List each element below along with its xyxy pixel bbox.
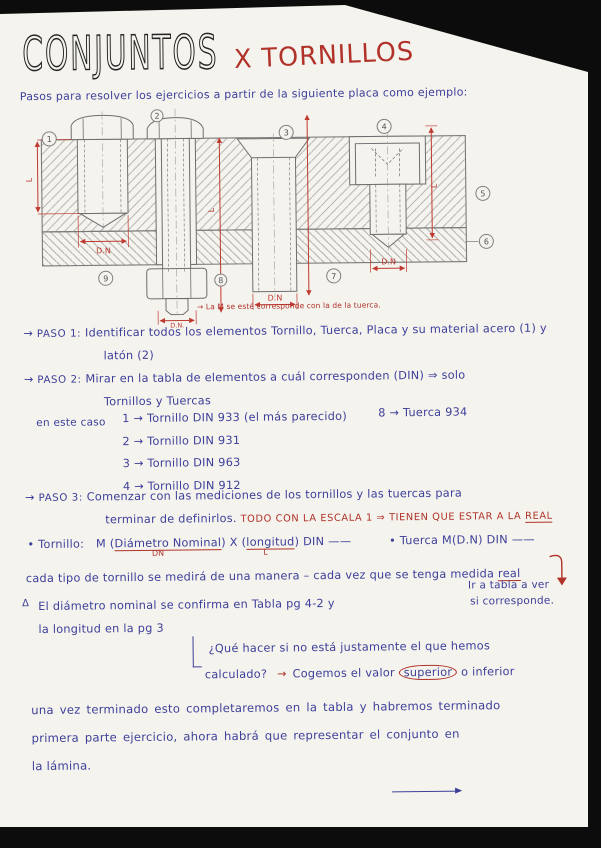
answer-pre: Cogemos el valor xyxy=(293,666,395,680)
paso1-text-2: latón (2) xyxy=(103,349,154,363)
paso3-text-2: terminar de definirlos. xyxy=(105,512,237,526)
paso2-label: PASO 2: xyxy=(37,375,81,386)
measure-note: cada tipo de tornillo se medirá de una m… xyxy=(26,567,494,585)
paso2-text: Mirar en la tabla de elementos a cuál co… xyxy=(85,369,465,386)
dim-label-l3: L xyxy=(430,183,439,188)
formula-close: ) DIN —— xyxy=(294,535,351,549)
formula-m-open: M ( xyxy=(96,537,115,550)
red-elbow-arrow-icon xyxy=(548,552,572,588)
formula-x-mid: ) X ( xyxy=(221,536,246,549)
paso3-red-note-underlined: REAL xyxy=(525,511,553,523)
bottom-arrow-icon xyxy=(392,791,460,793)
callout-1: 1 xyxy=(47,135,52,144)
intro-line: Pasos para resolver los ejercicios a par… xyxy=(20,86,468,104)
drawing-red-note: → La M se esté corresponde con la de la … xyxy=(197,300,381,311)
paso2-text-2: Tornillos y Tuercas xyxy=(104,394,211,408)
case-label: en este caso xyxy=(36,416,106,429)
page-content: CONJUNTOS X TORNILLOS Pasos para resolve… xyxy=(0,0,601,848)
paso2-arrow-icon: → xyxy=(24,373,34,386)
paso3-text: Comenzar con las mediciones de los torni… xyxy=(87,487,462,504)
assembly-drawing: L L L D.N D.N D.N D.N. 1 2 3 4 5 6 7 8 9 xyxy=(23,105,505,330)
footer-line-3: la lámina. xyxy=(32,758,92,773)
scanned-page: CONJUNTOS X TORNILLOS Pasos para resolve… xyxy=(0,0,601,848)
callout-7: 7 xyxy=(331,272,336,281)
question-line-2: calculado? xyxy=(205,668,267,682)
paso1-arrow-icon: → xyxy=(23,327,33,340)
answer-post: o inferior xyxy=(461,665,515,679)
footer-line-1: una vez terminado esto completaremos en … xyxy=(31,698,500,717)
bracket-mark xyxy=(192,636,201,667)
callout-2: 2 xyxy=(154,112,159,121)
callout-9: 9 xyxy=(103,274,108,283)
case-item: 1 → Tornillo DIN 933 (el más parecido) xyxy=(122,410,347,425)
tornillo-label: • Tornillo: xyxy=(27,538,84,552)
callout-4: 4 xyxy=(382,122,387,131)
dim-label-dn1: D.N xyxy=(96,246,111,255)
page-title: CONJUNTOS xyxy=(22,25,219,82)
footer-line-2: primera parte ejercicio, ahora habrá que… xyxy=(31,727,459,745)
callout-6: 6 xyxy=(484,237,489,246)
case-item: 2 → Tornillo DIN 931 xyxy=(122,434,240,448)
paso3-red-note: TODO CON LA ESCALA 1 ⇒ TIENEN QUE ESTAR … xyxy=(241,511,522,525)
tuerca-label: • Tuerca xyxy=(389,534,438,548)
dim-label-l2: L xyxy=(207,207,216,212)
case-item: 3 → Tornillo DIN 963 xyxy=(123,456,241,470)
case-item-nut: 8 → Tuerca 934 xyxy=(378,406,467,420)
callout-8: 8 xyxy=(218,276,223,285)
page-subtitle: X TORNILLOS xyxy=(233,37,414,75)
side-note-2: si corresponde. xyxy=(470,595,554,608)
tuerca-formula: M(D.N) DIN —— xyxy=(442,533,535,547)
paso1-label: PASO 1: xyxy=(37,329,81,340)
paso3-arrow-icon: → xyxy=(25,491,35,504)
callout-5: 5 xyxy=(480,189,485,198)
warning-triangle-icon: Δ xyxy=(22,598,29,609)
paso3-label: PASO 3: xyxy=(39,493,83,504)
formula-dn-word: Diámetro Nominal xyxy=(114,536,221,551)
callout-3: 3 xyxy=(284,128,289,137)
formula-dn-mark: DN xyxy=(152,549,164,558)
dim-label-l1: L xyxy=(25,177,34,182)
diam-note-2: la longitud en la pg 3 xyxy=(38,622,164,636)
formula-l-mark: L xyxy=(263,548,268,557)
dim-label-dn3: D.N xyxy=(381,257,396,266)
side-note-1: Ir a tabla a ver xyxy=(468,579,549,592)
answer-circled: superior xyxy=(399,665,458,681)
formula-l-word: longitud xyxy=(246,535,294,550)
bolt-1 xyxy=(71,111,134,230)
title-block: CONJUNTOS X TORNILLOS xyxy=(18,9,479,86)
diam-note-1: El diámetro nominal se confirma en Tabla… xyxy=(38,597,335,613)
answer-arrow-icon: → xyxy=(277,667,287,680)
question-line-1: ¿Qué hacer si no está justamente el que … xyxy=(209,639,491,655)
